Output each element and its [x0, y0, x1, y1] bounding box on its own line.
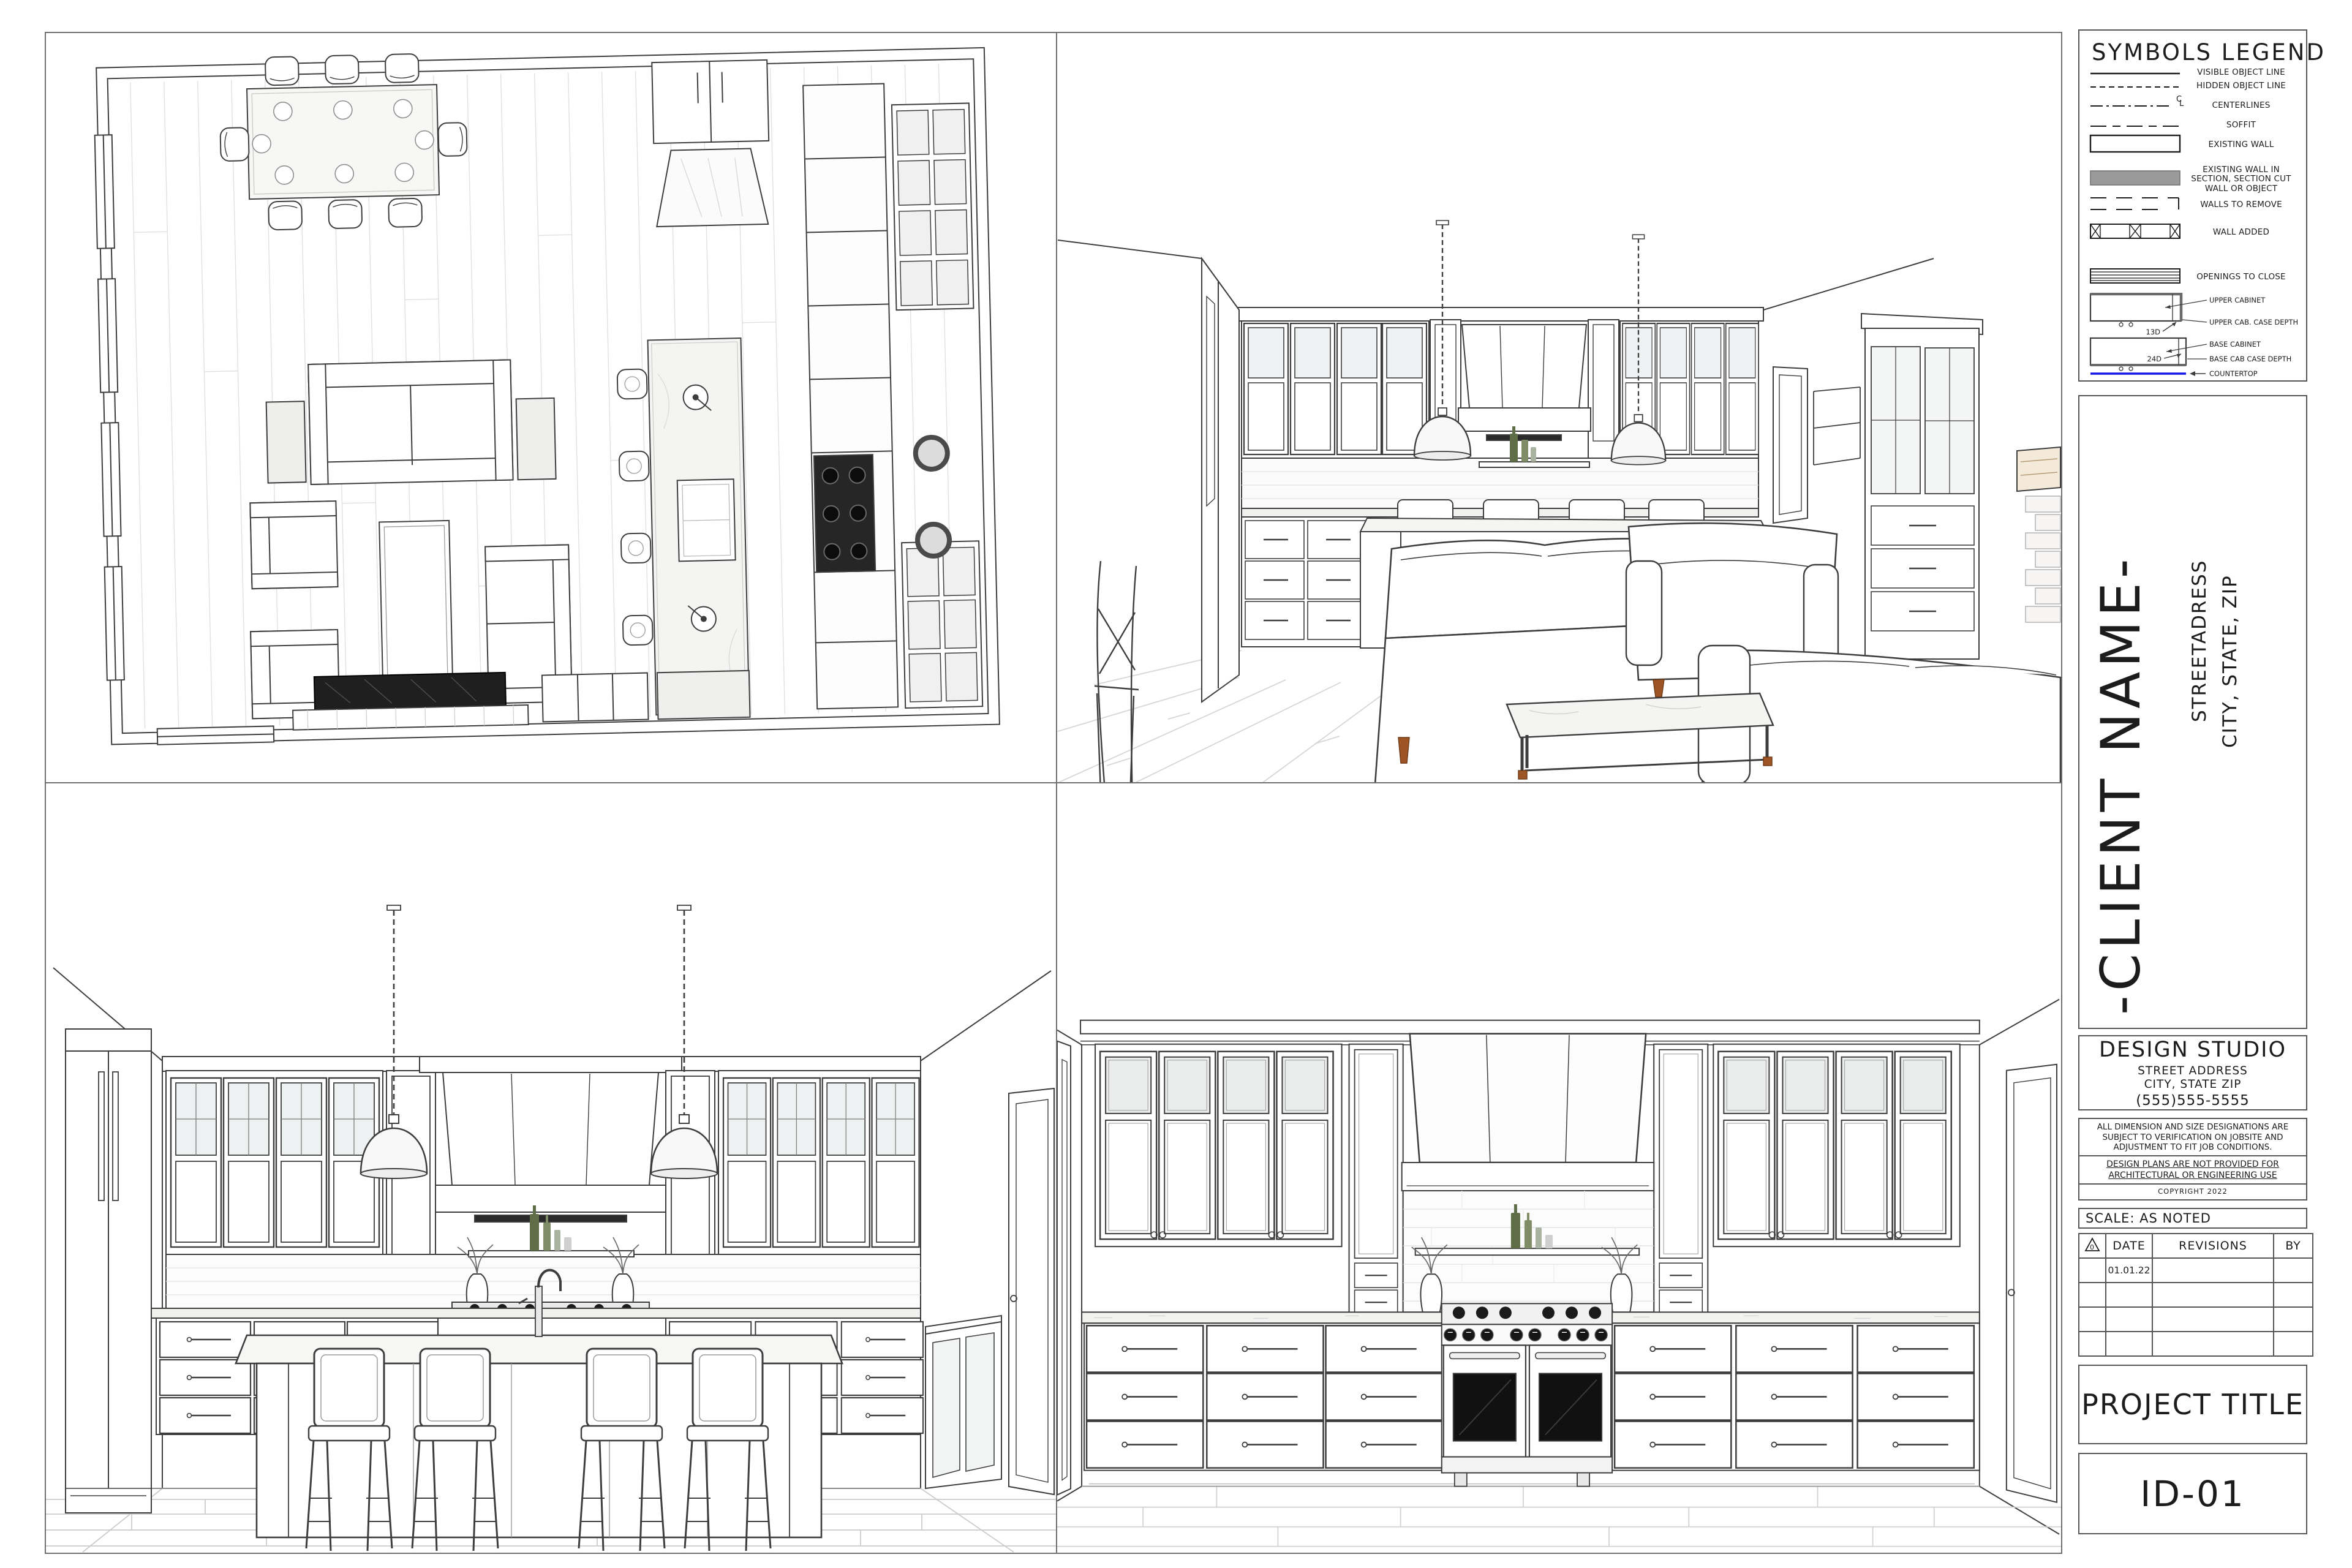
revisions-table: 0 DATE REVISIONS BY 01.01.22 — [2078, 1233, 2307, 1355]
legend-item-hidden-object-line: HIDDEN OBJECT LINE — [2089, 80, 2300, 93]
backsplash — [1403, 1191, 1654, 1312]
door-right — [1009, 1088, 1054, 1494]
base-cabinet-label: BASE CABINET — [2209, 340, 2261, 349]
client-name-block: -CLIENT NAME- STREETADRESS CITY, STATE, … — [2078, 395, 2307, 1029]
studio-phone: (555)555-5555 — [2136, 1093, 2250, 1109]
upper-cabinet-label: UPPER CABINET — [2209, 296, 2266, 304]
existing-wall-symbol — [2089, 134, 2182, 156]
doorway — [1773, 367, 1807, 523]
centerline-symbol: CL — [2089, 100, 2182, 112]
section-wall-symbol — [2089, 169, 2182, 190]
side-table-left — [266, 401, 306, 483]
kitchen-island — [648, 338, 750, 715]
disclaimer-general: ALL DIMENSION AND SIZE DESIGNATIONS ARE … — [2079, 1119, 2306, 1155]
revision-date — [2106, 1307, 2152, 1332]
wall-added-symbol — [2089, 222, 2182, 243]
countertop-label: COUNTERTOP — [2209, 369, 2258, 378]
revision-by — [2274, 1307, 2313, 1332]
dining-chair-edge — [1095, 561, 1139, 785]
legend-item-centerlines: CL CENTERLINES — [2089, 97, 2300, 115]
revision-desc — [2152, 1283, 2274, 1307]
revision-row — [2079, 1283, 2313, 1307]
hood — [420, 1057, 682, 1222]
viewport-plan-view — [45, 32, 1060, 786]
sofa — [308, 360, 513, 484]
revision-by — [2274, 1332, 2313, 1356]
legend-item-existing-wall: EXISTING WALL — [2089, 135, 2300, 156]
revision-desc — [2152, 1258, 2274, 1283]
stone-bench — [657, 671, 750, 719]
base-cabinets-left — [1084, 1323, 1444, 1470]
tall-pilaster-left — [1349, 1044, 1403, 1321]
plan-view-drawing — [46, 33, 1058, 785]
countertop-left — [1082, 1312, 1444, 1323]
client-name: -CLIENT NAME- — [2089, 420, 2152, 1015]
client-address-line2: CITY, STATE, ZIP — [2219, 469, 2241, 748]
tall-pilaster-right — [1654, 1044, 1708, 1321]
upper-depth-value: 13D — [2146, 328, 2161, 336]
legend-title: SYMBOLS LEGEND — [2092, 39, 2326, 66]
legend-label: EXISTING WALL IN SECTION, SECTION CUT WA… — [2182, 165, 2300, 194]
viewport-perspective-view — [1056, 32, 2062, 786]
studio-name: DESIGN STUDIO — [2099, 1038, 2286, 1062]
revision-row: 01.01.22 — [2079, 1258, 2313, 1283]
soffit-symbol — [2089, 120, 2182, 132]
legend-item-openings-to-close: OPENINGS TO CLOSE — [2089, 267, 2300, 288]
fireplace-edge — [2017, 447, 2060, 622]
drawing-sheet: SYMBOLS LEGEND VISIBLE OBJECT LINE HIDDE… — [0, 0, 2352, 1568]
crown — [1080, 1020, 1980, 1034]
revision-by — [2274, 1283, 2313, 1307]
disclaimer-plans: DESIGN PLANS ARE NOT PROVIDED FOR ARCHIT… — [2079, 1155, 2306, 1183]
armchair-1 — [250, 501, 337, 589]
legend-label: EXISTING WALL — [2182, 140, 2300, 150]
legend-item-wall-added: WALL ADDED — [2089, 222, 2300, 244]
studio-address-line1: STREET ADDRESS — [2138, 1065, 2248, 1078]
dining-table — [247, 85, 439, 199]
project-title: PROJECT TITLE — [2081, 1388, 2304, 1421]
viewport-range-elevation — [1056, 782, 2062, 1554]
base-cabinets — [1242, 517, 1370, 647]
legend-item-walls-to-remove: WALLS TO REMOVE — [2089, 195, 2300, 216]
floor — [1057, 1487, 2061, 1547]
symbols-legend-box: SYMBOLS LEGEND VISIBLE OBJECT LINE HIDDE… — [2078, 29, 2307, 382]
crown — [1237, 307, 1763, 321]
ceiling-lines — [53, 968, 1051, 1061]
hutch — [1861, 314, 1983, 659]
revisions-header-date: DATE — [2106, 1234, 2152, 1258]
range — [1442, 1303, 1612, 1486]
legend-label: HIDDEN OBJECT LINE — [2182, 81, 2300, 91]
island-elevation-drawing — [46, 783, 1058, 1553]
revision-date: 01.01.22 — [2106, 1258, 2152, 1283]
project-title-box: PROJECT TITLE — [2078, 1365, 2307, 1444]
openings-to-close-symbol — [2089, 267, 2182, 288]
visible-object-line-symbol — [2089, 67, 2182, 79]
upper-case-depth-label: UPPER CAB. CASE DEPTH — [2209, 318, 2298, 326]
revision-by — [2274, 1258, 2313, 1283]
legend-label: SOFFIT — [2182, 121, 2300, 130]
ceiling-lines — [1058, 240, 1934, 310]
legend-label: WALL ADDED — [2182, 228, 2300, 238]
design-studio-block: DESIGN STUDIO STREET ADDRESS CITY, STATE… — [2078, 1035, 2307, 1110]
legend-item-soffit: SOFFIT — [2089, 118, 2300, 134]
client-address-line1: STREETADRESS — [2188, 469, 2211, 722]
disclaimer-copyright: COPYRIGHT 2022 — [2079, 1183, 2306, 1197]
refrigerator — [66, 1029, 151, 1513]
scale-note: SCALE: AS NOTED — [2078, 1208, 2307, 1229]
legend-label: OPENINGS TO CLOSE — [2182, 273, 2300, 282]
disclaimer-box: ALL DIMENSION AND SIZE DESIGNATIONS ARE … — [2078, 1118, 2307, 1200]
door-right — [2007, 1065, 2057, 1502]
open-shelves — [1814, 387, 1860, 465]
revision-date — [2106, 1283, 2152, 1307]
svg-text:0: 0 — [2090, 1243, 2095, 1251]
revision-date — [2106, 1332, 2152, 1356]
legend-label: WALLS TO REMOVE — [2182, 200, 2300, 210]
studio-address-line2: CITY, STATE ZIP — [2144, 1078, 2242, 1091]
fireplace — [292, 672, 529, 730]
revision-delta-cell: 0 — [2079, 1234, 2106, 1258]
legend-label: VISIBLE OBJECT LINE — [2182, 68, 2300, 78]
media-console — [542, 673, 649, 722]
legend-item-existing-wall-in-section: EXISTING WALL IN SECTION, SECTION CUT WA… — [2089, 165, 2300, 194]
legend-item-visible-object-line: VISIBLE OBJECT LINE — [2089, 66, 2300, 80]
hood — [1402, 1034, 1654, 1200]
sheet-id-box: ID-01 — [2078, 1453, 2307, 1534]
revision-delta-icon: 0 — [2084, 1237, 2100, 1252]
revisions-header-by: BY — [2274, 1234, 2313, 1258]
corner-cabinet — [925, 1316, 1001, 1488]
perspective-view-drawing — [1057, 33, 2061, 785]
scale-text: SCALE: AS NOTED — [2086, 1211, 2211, 1226]
centerline-cl-glyph: CL — [2176, 97, 2185, 107]
revision-desc — [2152, 1307, 2274, 1332]
door-left — [1057, 1041, 1071, 1495]
revision-desc — [2152, 1332, 2274, 1356]
base-case-depth-label: BASE CAB CASE DEPTH — [2209, 355, 2291, 363]
base-depth-value: 24D — [2147, 355, 2162, 363]
legend-label: CENTERLINES — [2182, 101, 2300, 111]
revisions-header-revisions: REVISIONS — [2152, 1234, 2274, 1258]
revision-row — [2079, 1307, 2313, 1332]
base-cabinets-right — [1612, 1323, 1980, 1470]
left-tall-cabinet — [1202, 258, 1239, 702]
refrigerator-plan — [652, 60, 769, 143]
hidden-object-line-symbol — [2089, 81, 2182, 92]
walls-to-remove-symbol — [2089, 195, 2182, 215]
countertop-right — [1611, 1312, 1980, 1323]
cabinet-key-diagram: 13D 24D UPPER CABINET UPPER CAB. CASE DE… — [2089, 293, 2300, 379]
viewport-island-elevation — [45, 782, 1060, 1554]
sheet-id: ID-01 — [2140, 1473, 2245, 1515]
revision-row — [2079, 1332, 2313, 1356]
side-table-right — [516, 398, 556, 480]
range-elevation-drawing — [1057, 783, 2061, 1553]
hood-plan — [655, 148, 768, 227]
